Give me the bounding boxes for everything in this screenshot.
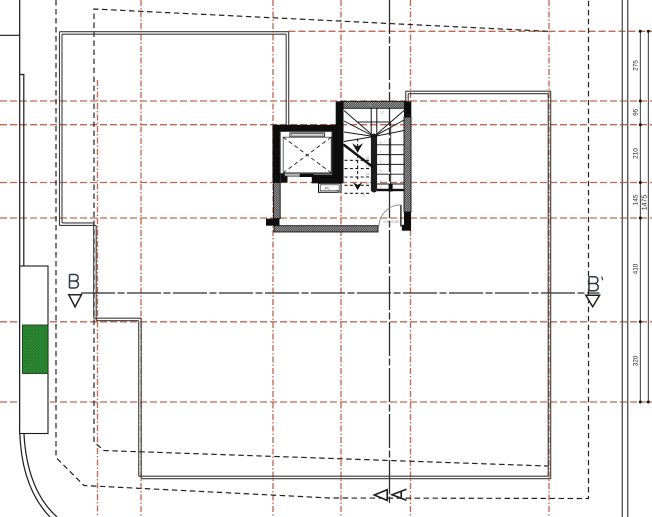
svg-text:275: 275 <box>633 60 640 71</box>
svg-text:410: 410 <box>633 263 640 274</box>
svg-text:4: 4 <box>380 179 382 183</box>
svg-text:320: 320 <box>633 355 640 366</box>
svg-text:6: 6 <box>380 160 382 164</box>
svg-text:18: 18 <box>368 103 372 107</box>
svg-text:12: 12 <box>365 156 369 160</box>
svg-text:17: 17 <box>380 111 384 115</box>
svg-text:5: 5 <box>380 170 382 174</box>
svg-text:95: 95 <box>633 108 640 116</box>
svg-text:13: 13 <box>365 164 369 168</box>
svg-text:14: 14 <box>365 173 369 177</box>
svg-text:.PC.: .PC. <box>324 187 331 191</box>
svg-text:1475: 1475 <box>642 195 649 211</box>
svg-text:15: 15 <box>365 181 369 185</box>
svg-text:7: 7 <box>380 150 382 154</box>
svg-text:8: 8 <box>380 141 382 145</box>
svg-text:145: 145 <box>633 194 640 205</box>
svg-text:210: 210 <box>633 148 640 159</box>
svg-text:9: 9 <box>363 194 365 198</box>
svg-text:0.90/2.20: 0.90/2.20 <box>384 220 399 224</box>
svg-text:3: 3 <box>380 185 382 189</box>
